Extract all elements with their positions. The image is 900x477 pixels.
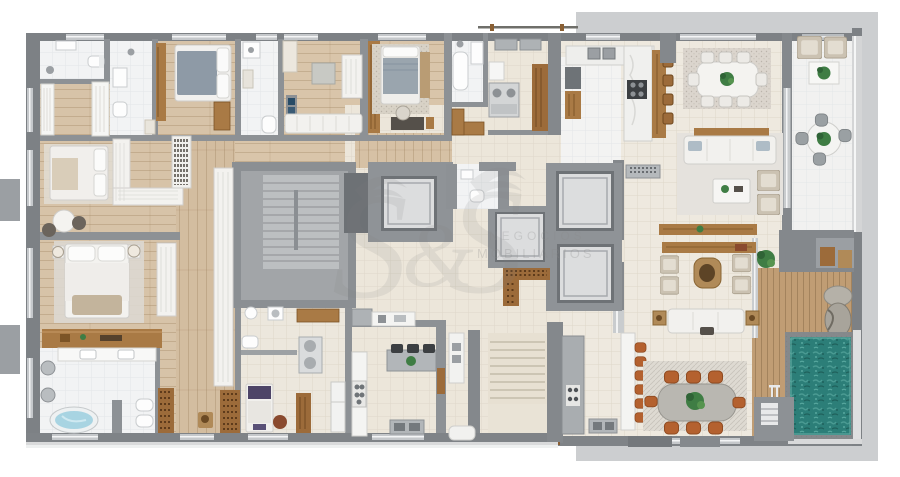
svg-text:MOBILIARIOS: MOBILIARIOS <box>477 246 595 261</box>
svg-text:NEGOCIOS: NEGOCIOS <box>489 229 586 243</box>
